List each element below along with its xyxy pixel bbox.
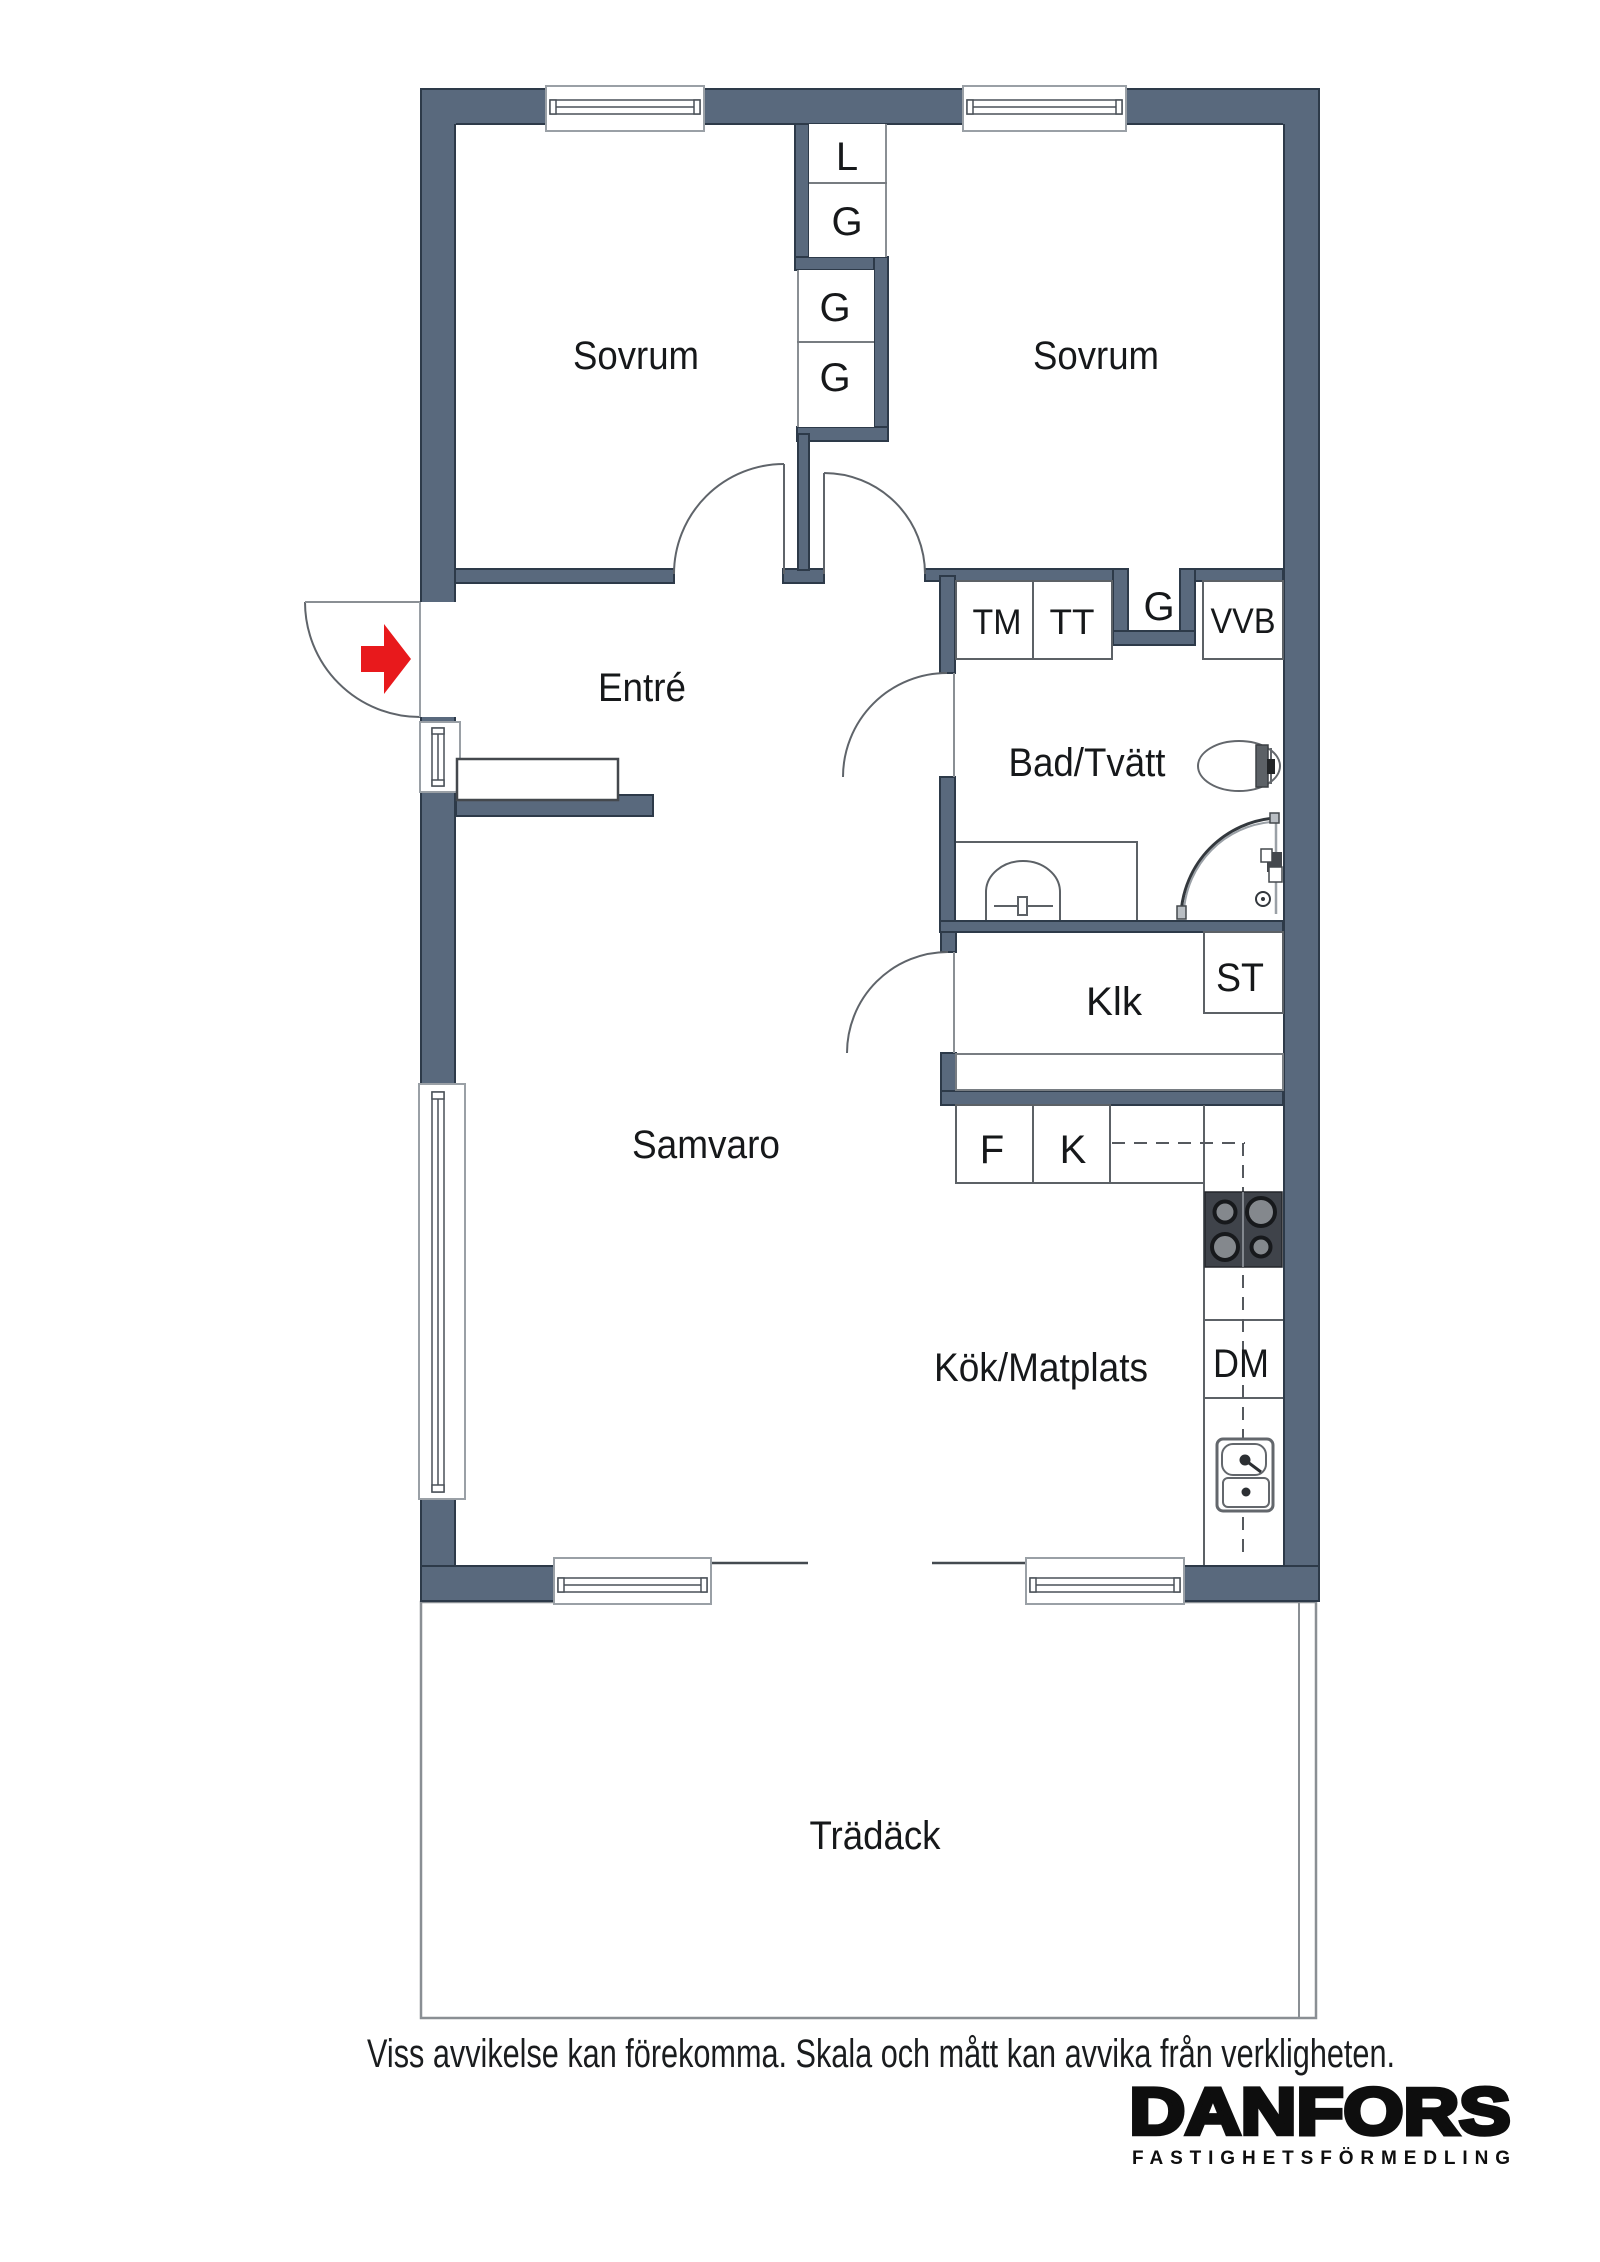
svg-text:DM: DM	[1213, 1342, 1269, 1386]
svg-text:FASTIGHETSFÖRMEDLING: FASTIGHETSFÖRMEDLING	[1132, 2148, 1510, 2169]
svg-text:DANFORS: DANFORS	[1130, 2074, 1511, 2148]
svg-text:Kök/Matplats: Kök/Matplats	[934, 1346, 1148, 1390]
svg-text:Sovrum: Sovrum	[573, 334, 699, 378]
svg-text:Bad/Tvätt: Bad/Tvätt	[1009, 741, 1166, 785]
svg-text:Trädäck: Trädäck	[810, 1814, 942, 1858]
svg-text:Klk: Klk	[1086, 980, 1143, 1024]
svg-text:K: K	[1060, 1128, 1087, 1172]
svg-text:F: F	[980, 1128, 1004, 1172]
svg-text:Samvaro: Samvaro	[632, 1123, 780, 1167]
svg-text:VVB: VVB	[1211, 602, 1276, 641]
svg-text:Entré: Entré	[598, 666, 686, 710]
svg-text:G: G	[831, 200, 862, 244]
svg-text:L: L	[836, 135, 858, 179]
svg-text:G: G	[819, 286, 850, 330]
svg-text:TT: TT	[1050, 603, 1095, 642]
svg-text:G: G	[819, 356, 850, 400]
svg-text:TM: TM	[973, 603, 1022, 642]
svg-text:Viss avvikelse kan förekomma.: Viss avvikelse kan förekomma. Skala och …	[367, 2032, 1395, 2076]
svg-text:ST: ST	[1216, 956, 1264, 1000]
svg-text:G: G	[1143, 585, 1174, 629]
svg-text:Sovrum: Sovrum	[1033, 334, 1159, 378]
